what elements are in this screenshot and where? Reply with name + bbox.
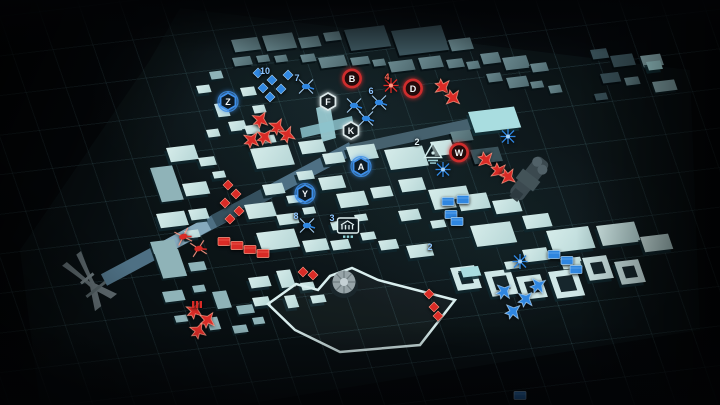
building [188, 208, 210, 221]
building [530, 81, 544, 89]
building [548, 85, 563, 94]
unit-friendly-inf-icon[interactable] [264, 90, 276, 108]
unit-enemy-box-icon[interactable] [217, 234, 231, 252]
building [372, 59, 386, 67]
unit-count-label: 2 [427, 242, 432, 252]
unit-friendly-box-icon[interactable] [569, 262, 583, 280]
building [646, 60, 663, 70]
objective-marker-Z[interactable]: Z [217, 91, 239, 118]
building [252, 296, 271, 306]
unit-enemy-inf-icon[interactable] [224, 212, 236, 230]
objective-marker-A[interactable]: A [350, 156, 372, 183]
uplink-icon[interactable] [422, 141, 444, 170]
objective-marker-K[interactable]: K [340, 120, 362, 147]
building [236, 304, 255, 314]
building [530, 62, 549, 72]
command-post-icon[interactable] [335, 216, 361, 245]
objective-marker-B[interactable]: B [340, 67, 364, 96]
building [360, 231, 377, 240]
unit-count-label: 3 [329, 213, 334, 223]
unit-enemy-inf-icon[interactable] [432, 309, 444, 327]
building [232, 324, 249, 333]
unit-enemy-inf-icon[interactable] [230, 187, 242, 205]
building [196, 84, 212, 93]
unit-enemy-box-icon[interactable] [256, 246, 270, 264]
building [252, 317, 265, 325]
building [310, 294, 327, 303]
building [296, 170, 315, 180]
building [240, 86, 257, 96]
unit-friendly-box-icon[interactable] [547, 247, 561, 265]
unit-count-label: 10 [260, 66, 270, 76]
objective-marker-F[interactable]: F [317, 91, 339, 118]
building [486, 72, 503, 82]
building [192, 285, 206, 293]
building [594, 93, 608, 101]
building [198, 156, 217, 166]
unit-friendly-box-icon[interactable] [456, 192, 470, 210]
svg-text:Z: Z [225, 97, 231, 107]
building [300, 53, 317, 62]
building [256, 55, 270, 63]
building [206, 129, 221, 138]
building [480, 52, 502, 65]
unit-enemy-box-icon[interactable] [243, 242, 257, 260]
svg-text:Y: Y [302, 189, 308, 199]
unit-friendly-inf-icon[interactable] [282, 68, 294, 86]
unit-friendly-star-icon[interactable] [500, 129, 516, 150]
unit-friendly-box-icon[interactable] [450, 214, 464, 232]
unit-count-label: 2 [414, 137, 419, 147]
unit-count-label: 8 [293, 211, 298, 221]
unit-friendly-heli-icon[interactable] [296, 215, 318, 242]
svg-text:B: B [349, 74, 356, 84]
objective-marker-Y[interactable]: Y [294, 183, 316, 210]
building [446, 58, 465, 68]
unit-count-label: 7 [294, 73, 299, 83]
svg-text:W: W [455, 148, 464, 158]
svg-text:K: K [348, 126, 355, 136]
unit-enemy-bars-icon[interactable] [191, 296, 203, 314]
svg-text:F: F [325, 97, 331, 107]
building [209, 71, 224, 80]
unit-enemy-box-icon[interactable] [230, 238, 244, 256]
building [640, 234, 673, 253]
building [323, 31, 342, 41]
building [590, 48, 609, 59]
unit-friendly-box-icon[interactable] [513, 388, 527, 405]
building [624, 76, 641, 85]
svg-text:A: A [358, 162, 365, 172]
building [274, 55, 288, 63]
unit-friendly-star-icon[interactable] [512, 254, 528, 275]
unit-enemy-inf-icon[interactable] [307, 268, 319, 286]
svg-text:D: D [410, 84, 417, 94]
unit-count-label: 4 [384, 72, 389, 82]
objective-marker-W[interactable]: W [447, 141, 471, 170]
building [466, 61, 481, 70]
unit-count-label: 6 [368, 86, 373, 96]
objective-marker-D[interactable]: D [401, 77, 425, 106]
battle-map-screen[interactable]: ZFKAYBDW 107648322 [0, 0, 720, 405]
